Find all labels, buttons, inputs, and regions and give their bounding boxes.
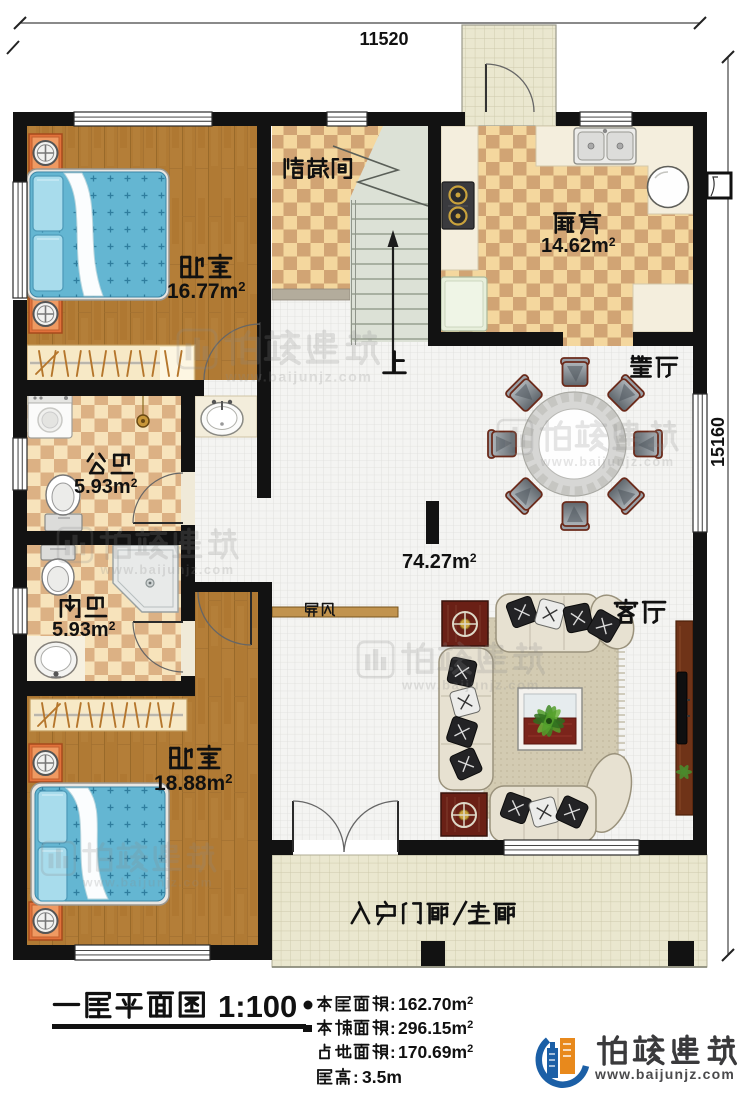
svg-text:3.5m: 3.5m [362,1067,402,1087]
svg-text:www.baijunjz.com: www.baijunjz.com [100,562,235,577]
svg-text:www.baijunjz.com: www.baijunjz.com [594,1066,735,1082]
svg-text:296.15m2: 296.15m2 [398,1018,473,1038]
svg-text:74.27m2: 74.27m2 [402,551,477,573]
svg-text:14.62m2: 14.62m2 [541,235,616,257]
svg-text:170.69m2: 170.69m2 [398,1042,473,1062]
svg-text:16.77m2: 16.77m2 [167,279,245,303]
svg-text:www.baijunjz.com: www.baijunjz.com [225,369,373,385]
svg-text:162.70m2: 162.70m2 [398,994,473,1014]
svg-text::: : [390,995,396,1014]
svg-text:www.baijunjz.com: www.baijunjz.com [540,454,675,469]
svg-text:18.88m2: 18.88m2 [154,771,232,795]
svg-text::: : [390,1019,396,1038]
svg-text:5.93m2: 5.93m2 [74,476,138,498]
svg-text:5.93m2: 5.93m2 [52,619,116,641]
svg-text:www.baijunjz.com: www.baijunjz.com [401,678,540,693]
svg-text::: : [353,1068,359,1087]
svg-text:11520: 11520 [359,29,408,49]
svg-text:www.baijunjz.com: www.baijunjz.com [82,875,213,889]
svg-text:1:100: 1:100 [218,989,297,1024]
svg-text::: : [390,1043,396,1062]
svg-text:15160: 15160 [708,417,728,467]
